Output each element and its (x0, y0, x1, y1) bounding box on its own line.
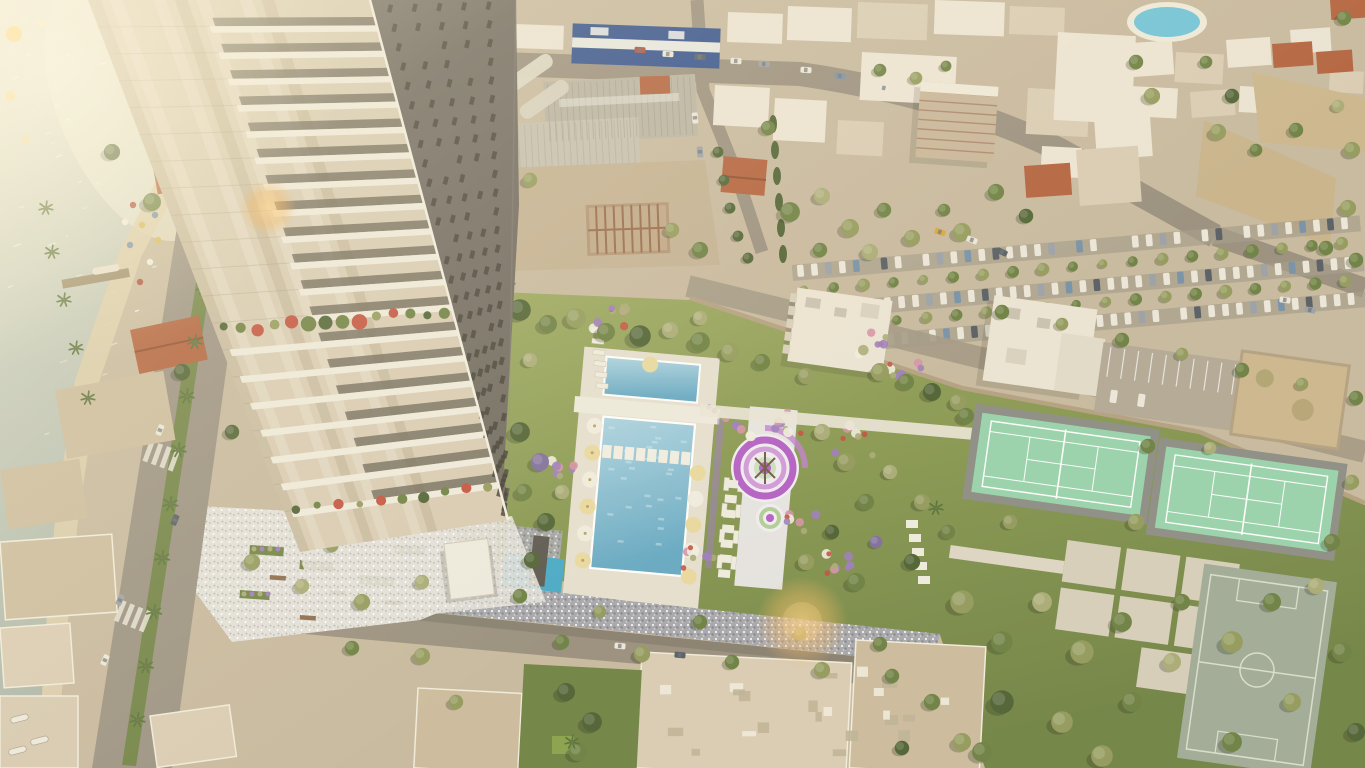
aerial-render (0, 0, 1365, 768)
flare-dot-icon (5, 91, 15, 101)
lens-flare-icon (240, 180, 296, 236)
flare-dot-icon (6, 26, 22, 42)
flare-dot-icon (22, 136, 30, 144)
lens-flare-icon (782, 602, 822, 642)
lighting-overlays (0, 0, 1365, 768)
flare-dot-icon (38, 20, 46, 28)
